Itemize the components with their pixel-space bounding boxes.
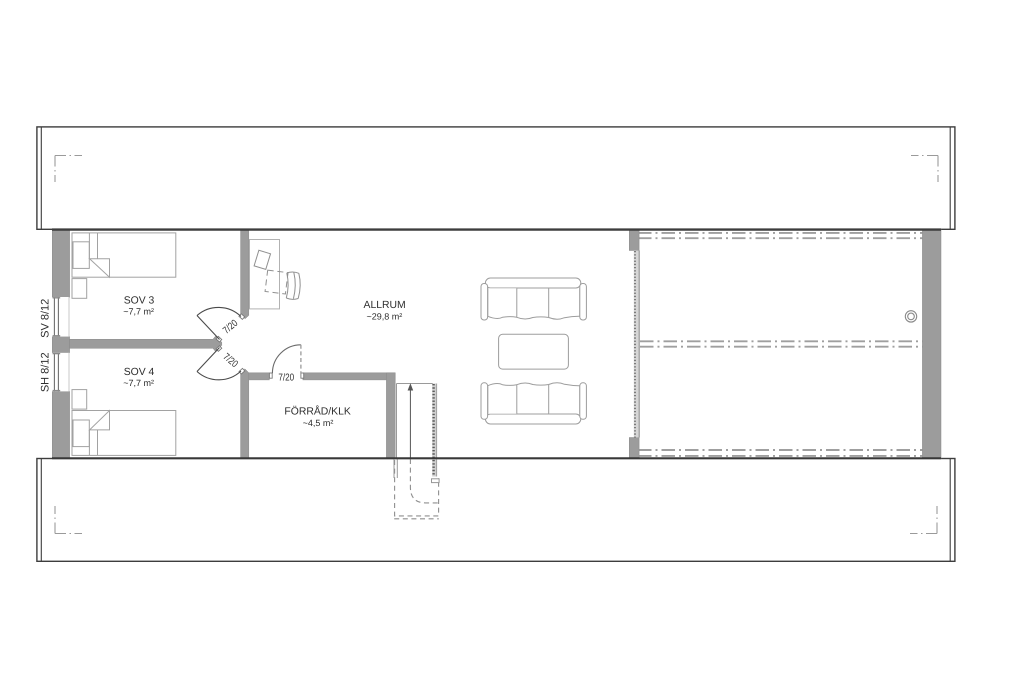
svg-text:SV 8/12: SV 8/12 <box>39 299 51 338</box>
svg-text:7/20: 7/20 <box>278 373 294 384</box>
svg-text:SOV 4: SOV 4 <box>124 367 155 378</box>
svg-text:~7,7 m²: ~7,7 m² <box>123 306 154 316</box>
svg-text:FÖRRÅD/KLK: FÖRRÅD/KLK <box>284 405 350 418</box>
svg-text:~4,5 m²: ~4,5 m² <box>303 418 334 428</box>
svg-text:~29,8 m²: ~29,8 m² <box>367 311 403 321</box>
svg-text:SOV 3: SOV 3 <box>124 295 155 306</box>
svg-text:SH 8/12: SH 8/12 <box>39 352 51 392</box>
svg-text:ALLRUM: ALLRUM <box>364 300 406 311</box>
svg-text:~7,7 m²: ~7,7 m² <box>123 378 154 388</box>
